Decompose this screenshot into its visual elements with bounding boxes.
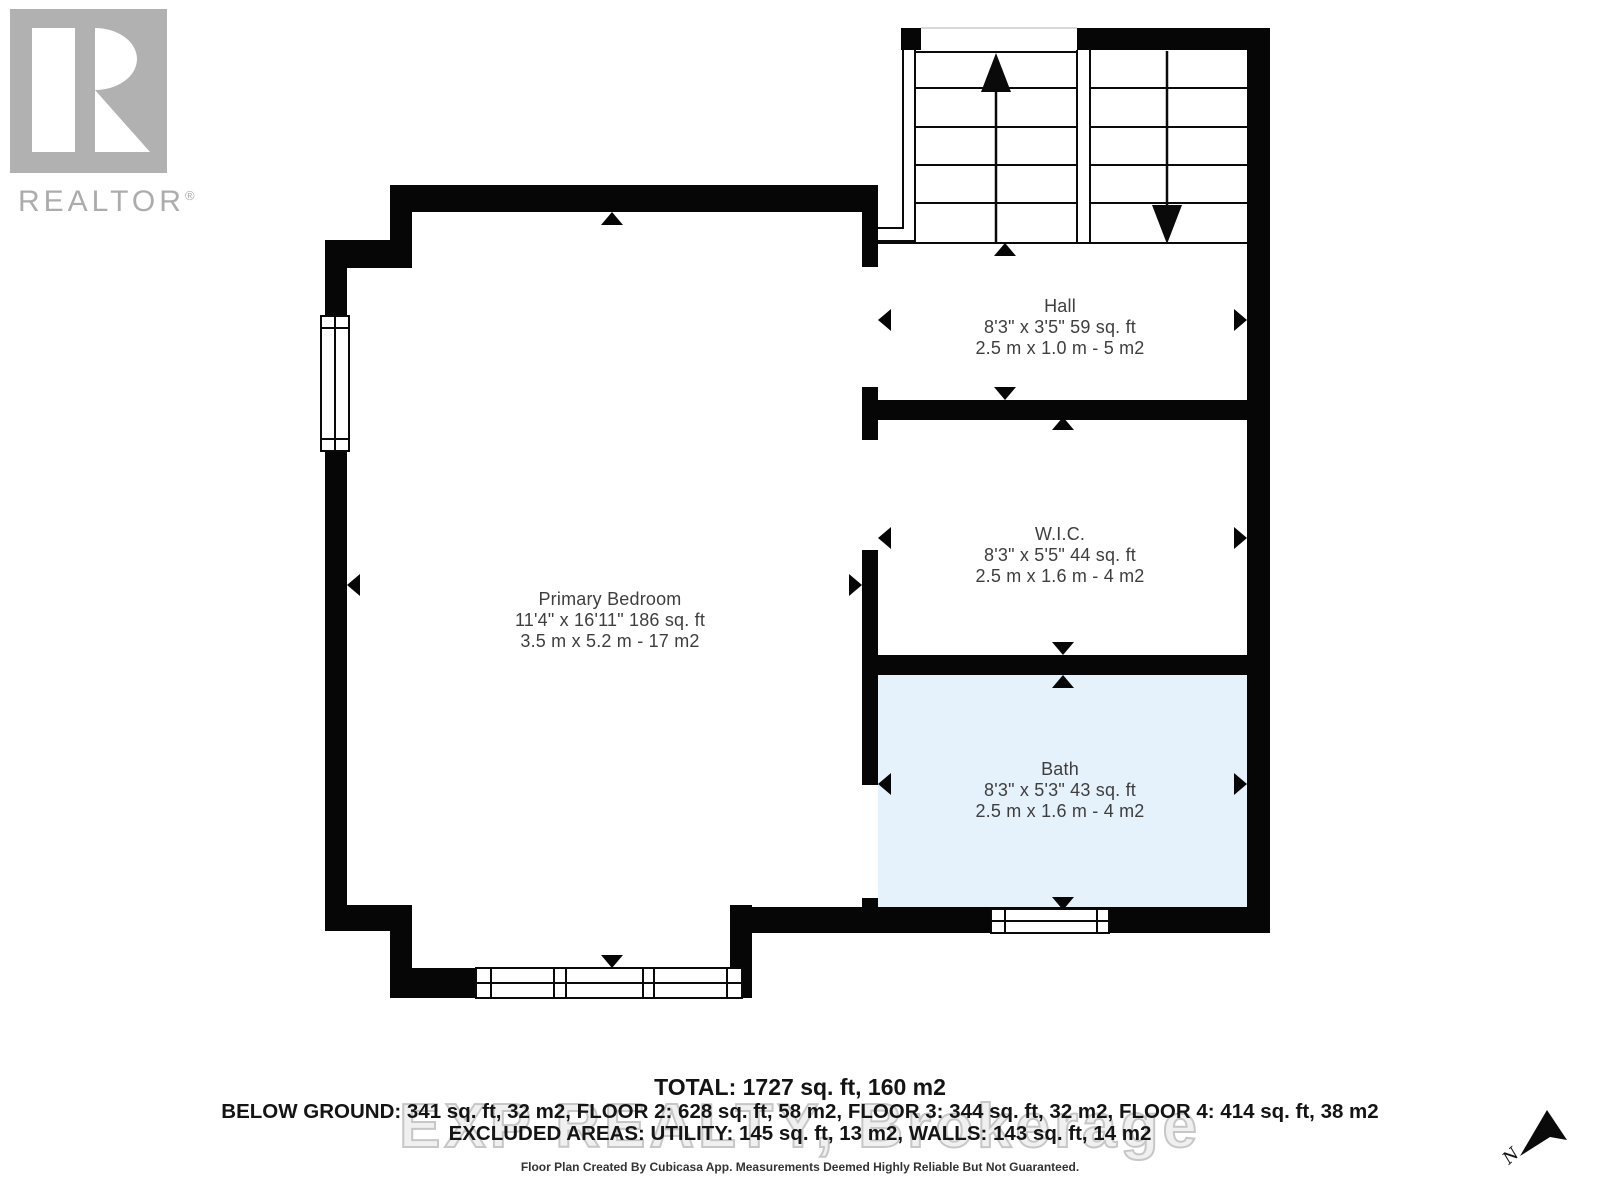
room-dim-imperial: 8'3" x 3'5" 59 sq. ft — [860, 317, 1260, 338]
room-dim-imperial: 8'3" x 5'3" 43 sq. ft — [860, 780, 1260, 801]
room-dim-imperial: 8'3" x 5'5" 44 sq. ft — [860, 545, 1260, 566]
wall-segment — [862, 898, 878, 933]
floor-areas-text: BELOW GROUND: 341 sq. ft, 32 m2, FLOOR 2… — [0, 1100, 1600, 1124]
room-label-bath: Bath 8'3" x 5'3" 43 sq. ft 2.5 m x 1.6 m… — [860, 759, 1260, 822]
measure-arrow-up-icon — [1052, 675, 1074, 688]
room-name: Primary Bedroom — [410, 589, 810, 610]
room-name: Bath — [860, 759, 1260, 780]
room-label-hall: Hall 8'3" x 3'5" 59 sq. ft 2.5 m x 1.0 m… — [860, 296, 1260, 359]
measure-arrow-up-icon — [1052, 417, 1074, 430]
room-dim-metric: 2.5 m x 1.6 m - 4 m2 — [860, 801, 1260, 822]
measure-arrow-down-icon — [601, 955, 623, 968]
wall-segment — [325, 450, 347, 905]
wall-segment — [862, 655, 1270, 675]
window-symbol — [475, 967, 743, 999]
realtor-logo: REALTOR® — [10, 9, 220, 224]
wall-segment — [390, 185, 878, 212]
measure-arrow-down-icon — [1052, 642, 1074, 655]
stair-treads — [878, 52, 1247, 243]
floor-plan-page: REALTOR® — [0, 0, 1600, 1200]
measure-arrow-down-icon — [994, 387, 1016, 400]
stairs-down-arrow — [1152, 51, 1182, 244]
room-label-wic: W.I.C. 8'3" x 5'5" 44 sq. ft 2.5 m x 1.6… — [860, 524, 1260, 587]
measure-arrow-up-icon — [601, 212, 623, 225]
wall-segment — [390, 905, 412, 998]
wall-segment — [1077, 28, 1270, 50]
measure-arrow-down-icon — [1052, 897, 1074, 910]
room-name: W.I.C. — [860, 524, 1260, 545]
stair-rails — [878, 50, 1090, 243]
room-name: Hall — [860, 296, 1260, 317]
realtor-r-block-icon — [10, 9, 167, 173]
room-dim-metric: 2.5 m x 1.0 m - 5 m2 — [860, 338, 1260, 359]
wall-segment — [862, 212, 878, 267]
room-label-primary-bedroom: Primary Bedroom 11'4" x 16'11" 186 sq. f… — [410, 589, 810, 652]
window-symbol — [320, 315, 350, 452]
measure-arrow-up-icon — [994, 243, 1016, 256]
north-compass-icon: N — [1495, 1095, 1585, 1180]
excluded-areas-text: EXCLUDED AREAS: UTILITY: 145 sq. ft, 13 … — [0, 1122, 1600, 1146]
registered-mark: ® — [185, 188, 195, 203]
compass-north-label: N — [1498, 1143, 1524, 1169]
wall-segment — [325, 240, 347, 317]
room-dim-metric: 3.5 m x 5.2 m - 17 m2 — [410, 631, 810, 652]
staircase — [862, 24, 1270, 250]
stair-post — [901, 28, 921, 50]
room-dim-metric: 2.5 m x 1.6 m - 4 m2 — [860, 566, 1260, 587]
measure-arrow-left-icon — [347, 574, 360, 596]
realtor-logo-text: REALTOR® — [18, 185, 218, 219]
disclaimer-text: Floor Plan Created By Cubicasa App. Meas… — [0, 1160, 1600, 1174]
room-dim-imperial: 11'4" x 16'11" 186 sq. ft — [410, 610, 810, 631]
total-area-text: TOTAL: 1727 sq. ft, 160 m2 — [0, 1074, 1600, 1101]
stairs-up-arrow — [981, 53, 1011, 243]
window-symbol — [990, 908, 1110, 934]
